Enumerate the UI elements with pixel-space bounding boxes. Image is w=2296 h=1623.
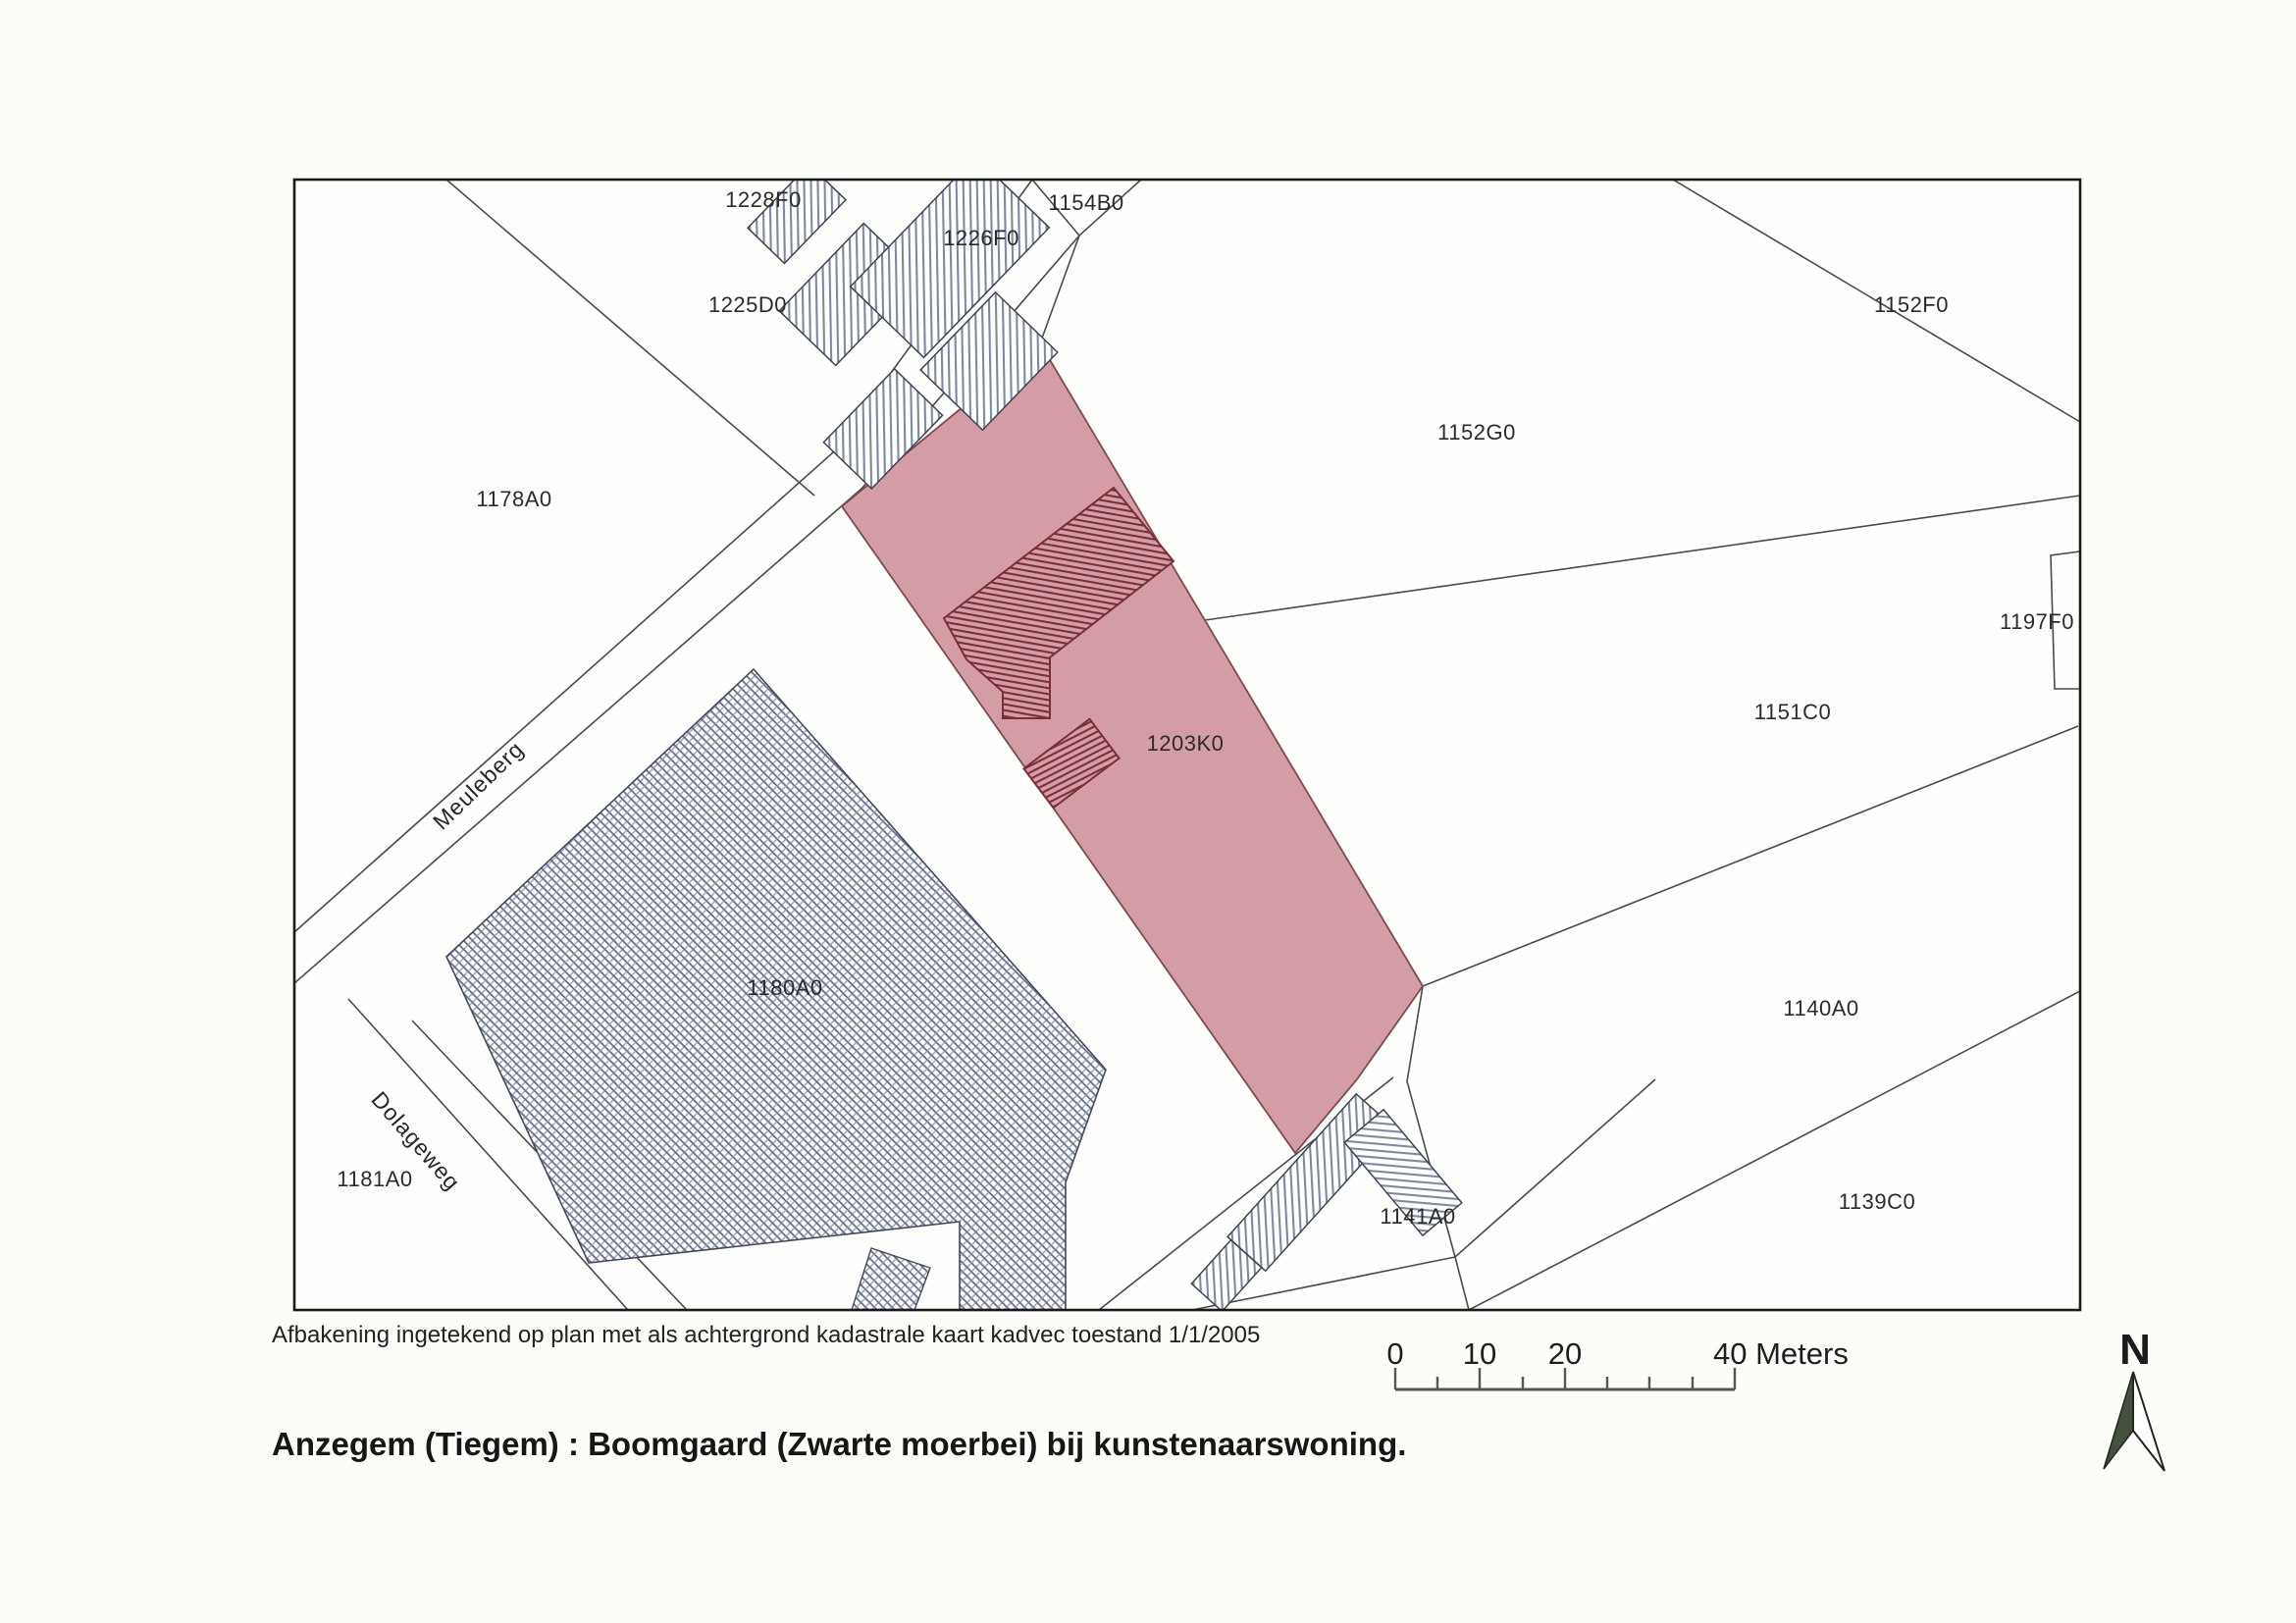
parcel-label-1180A0: 1180A0 (747, 975, 822, 1000)
scale-label-20: 20 (1548, 1336, 1582, 1371)
north-arrow: N (2104, 1326, 2165, 1471)
parcel-label-1197F0: 1197F0 (2000, 609, 2074, 634)
parcel-label-1140A0: 1140A0 (1783, 996, 1858, 1021)
scale-label-10: 10 (1463, 1336, 1496, 1371)
parcel-label-1228F0: 1228F0 (725, 187, 802, 212)
parcel-label-1225D0: 1225D0 (708, 292, 787, 317)
scale-label-40-meters: 40 Meters (1713, 1336, 1849, 1371)
parcel-label-1152F0: 1152F0 (1874, 292, 1949, 317)
parcel-label-1226F0: 1226F0 (943, 226, 1019, 250)
parcel-label-1178A0: 1178A0 (476, 487, 551, 511)
parcel-label-1203K0: 1203K0 (1147, 731, 1225, 756)
page-title: Anzegem (Tiegem) : Boomgaard (Zwarte moe… (272, 1426, 1406, 1462)
parcel-label-1139C0: 1139C0 (1839, 1189, 1915, 1214)
north-arrow-left-half (2104, 1372, 2133, 1469)
parcel-label-1141A0: 1141A0 (1380, 1204, 1455, 1229)
north-arrow-label: N (2119, 1326, 2151, 1374)
scanned-map-page: 1228F0 1154B0 1226F0 1225D0 1152F0 1152G… (0, 0, 2296, 1623)
parcel-label-1154B0: 1154B0 (1048, 190, 1123, 215)
scale-label-0: 0 (1386, 1336, 1403, 1371)
parcel-label-1181A0: 1181A0 (337, 1167, 412, 1191)
scale-bar-ticks (1395, 1368, 1735, 1389)
north-arrow-right-half (2133, 1372, 2165, 1471)
parcel-label-1151C0: 1151C0 (1754, 700, 1831, 724)
parcel-label-1152G0: 1152G0 (1437, 420, 1516, 445)
scale-bar: 0 10 20 40 Meters (1386, 1336, 1848, 1389)
map-caption: Afbakening ingetekend op plan met als ac… (272, 1322, 1260, 1348)
cadastral-map-scan: 1228F0 1154B0 1226F0 1225D0 1152F0 1152G… (0, 0, 2296, 1623)
